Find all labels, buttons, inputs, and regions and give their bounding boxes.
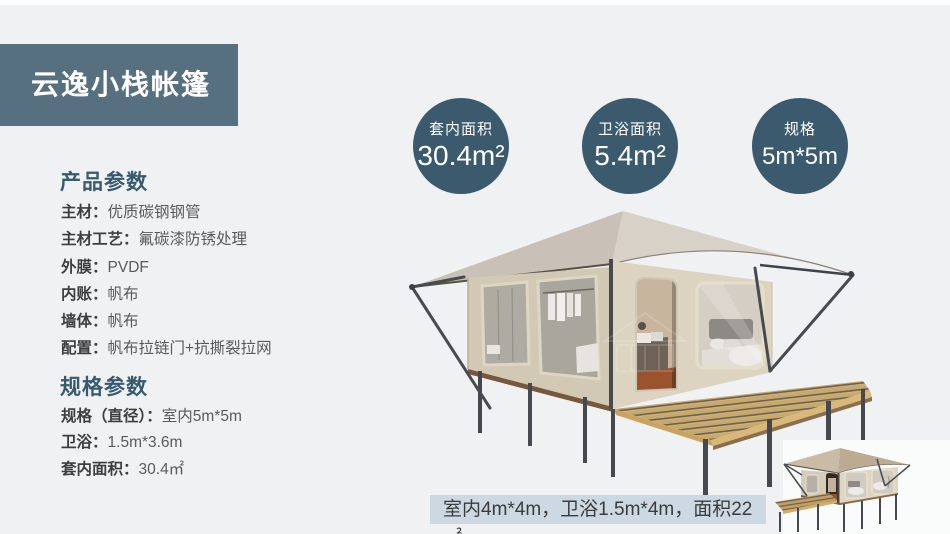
bed-through-window xyxy=(576,343,599,373)
stilt-leg xyxy=(861,389,865,441)
param-row: 规格（直径）：室内5m*5m xyxy=(61,404,242,430)
param-label: 墙体： xyxy=(61,313,108,330)
stat-circle-size: 规格 5m*5m xyxy=(752,98,848,194)
stilt-leg xyxy=(843,504,845,532)
wing-strut xyxy=(770,275,853,371)
circle-label: 套内面积 xyxy=(413,118,509,139)
spec-params-list: 规格（直径）：室内5m*5m 卫浴：1.5m*3.6m 套内面积：30.4㎡ xyxy=(61,404,242,483)
circle-value: 30.4m² xyxy=(413,140,509,172)
param-row: 外膜：PVDF xyxy=(61,254,272,281)
spec-params-heading: 规格参数 xyxy=(60,371,148,401)
param-label: 主材： xyxy=(61,204,108,221)
param-row: 主材：优质碳钢钢管 xyxy=(61,199,272,226)
stilt-leg xyxy=(895,494,897,520)
hanging-clothes xyxy=(557,293,565,321)
stilt-leg xyxy=(767,419,772,487)
stilt-leg xyxy=(797,508,799,532)
strut-bracket xyxy=(409,284,415,290)
product-params-list: 主材：优质碳钢钢管 主材工艺：氟碳漆防锈处理 外膜：PVDF 内账：帆布 墙体：… xyxy=(61,199,272,363)
stilt-leg xyxy=(779,512,781,532)
circle-value: 5.4m² xyxy=(582,140,678,172)
hanging-clothes xyxy=(575,294,581,316)
title-banner: 云逸小栈帐篷 xyxy=(0,44,238,126)
stat-circle-bathroom-area: 卫浴面积 5.4m² xyxy=(582,98,678,194)
front-window xyxy=(845,472,867,498)
param-value: 优质碳钢钢管 xyxy=(108,204,201,221)
param-value: 帆布拉链门+抗撕裂拉网 xyxy=(108,340,272,357)
hanging-clothes xyxy=(567,293,573,317)
param-value: 1.5m*3.6m xyxy=(108,434,183,451)
corner-pole xyxy=(838,473,840,503)
param-label: 内账： xyxy=(61,286,108,303)
circle-label: 卫浴面积 xyxy=(582,118,678,139)
circle-value: 5m*5m xyxy=(752,143,848,171)
hanging-clothes xyxy=(548,294,555,320)
stat-circle-indoor-area: 套内面积 30.4m² xyxy=(413,98,509,194)
param-row: 主材工艺：氟碳漆防锈处理 xyxy=(61,226,272,253)
stilt-leg xyxy=(817,504,819,530)
stilt-leg xyxy=(478,371,482,433)
param-label: 外膜： xyxy=(61,259,108,276)
window-detail xyxy=(487,345,500,354)
small-tent-image xyxy=(773,438,950,534)
param-label: 规格（直径）： xyxy=(61,408,162,425)
param-value: 室内5m*5m xyxy=(162,408,242,425)
param-value: 氟碳漆防锈处理 xyxy=(139,231,248,248)
page-title: 云逸小栈帐篷 xyxy=(0,44,238,126)
param-row: 套内面积：30.4㎡ xyxy=(61,457,242,483)
circle-label: 规格 xyxy=(752,118,848,139)
product-params-heading: 产品参数 xyxy=(60,166,148,196)
corner-pole xyxy=(609,259,613,409)
front-window xyxy=(697,283,763,371)
stilt-leg xyxy=(611,409,615,477)
caption-bar: 室内4m*4m，卫浴1.5m*4m，面积22㎡ xyxy=(430,495,766,524)
param-row: 配置：帆布拉链门+抗撕裂拉网 xyxy=(61,335,272,362)
side-window xyxy=(806,475,818,493)
param-label: 卫浴： xyxy=(61,434,108,451)
param-value: 帆布 xyxy=(108,286,139,303)
param-label: 主材工艺： xyxy=(61,231,139,248)
param-row: 内账：帆布 xyxy=(61,281,272,308)
param-row: 卫浴：1.5m*3.6m xyxy=(61,430,242,456)
caption-text: 室内4m*4m，卫浴1.5m*4m，面积22㎡ xyxy=(430,495,766,534)
stilt-leg xyxy=(861,501,863,529)
door-interior xyxy=(828,478,836,492)
param-value: PVDF xyxy=(108,259,149,276)
param-value: 30.4㎡ xyxy=(139,461,185,478)
strut-bracket xyxy=(848,271,854,277)
stilt-leg xyxy=(583,397,587,463)
param-value: 帆布 xyxy=(108,313,139,330)
roof-right-face xyxy=(612,211,853,275)
door-opening xyxy=(636,278,677,391)
stilt-leg xyxy=(879,498,881,524)
slide-page: 云逸小栈帐篷 产品参数 主材：优质碳钢钢管 主材工艺：氟碳漆防锈处理 外膜：PV… xyxy=(0,0,950,534)
param-row: 墙体：帆布 xyxy=(61,308,272,335)
top-strip xyxy=(0,0,950,5)
param-label: 配置： xyxy=(61,340,108,357)
param-label: 套内面积： xyxy=(61,461,139,478)
stilt-leg xyxy=(703,439,708,495)
stilt-leg xyxy=(528,383,532,446)
